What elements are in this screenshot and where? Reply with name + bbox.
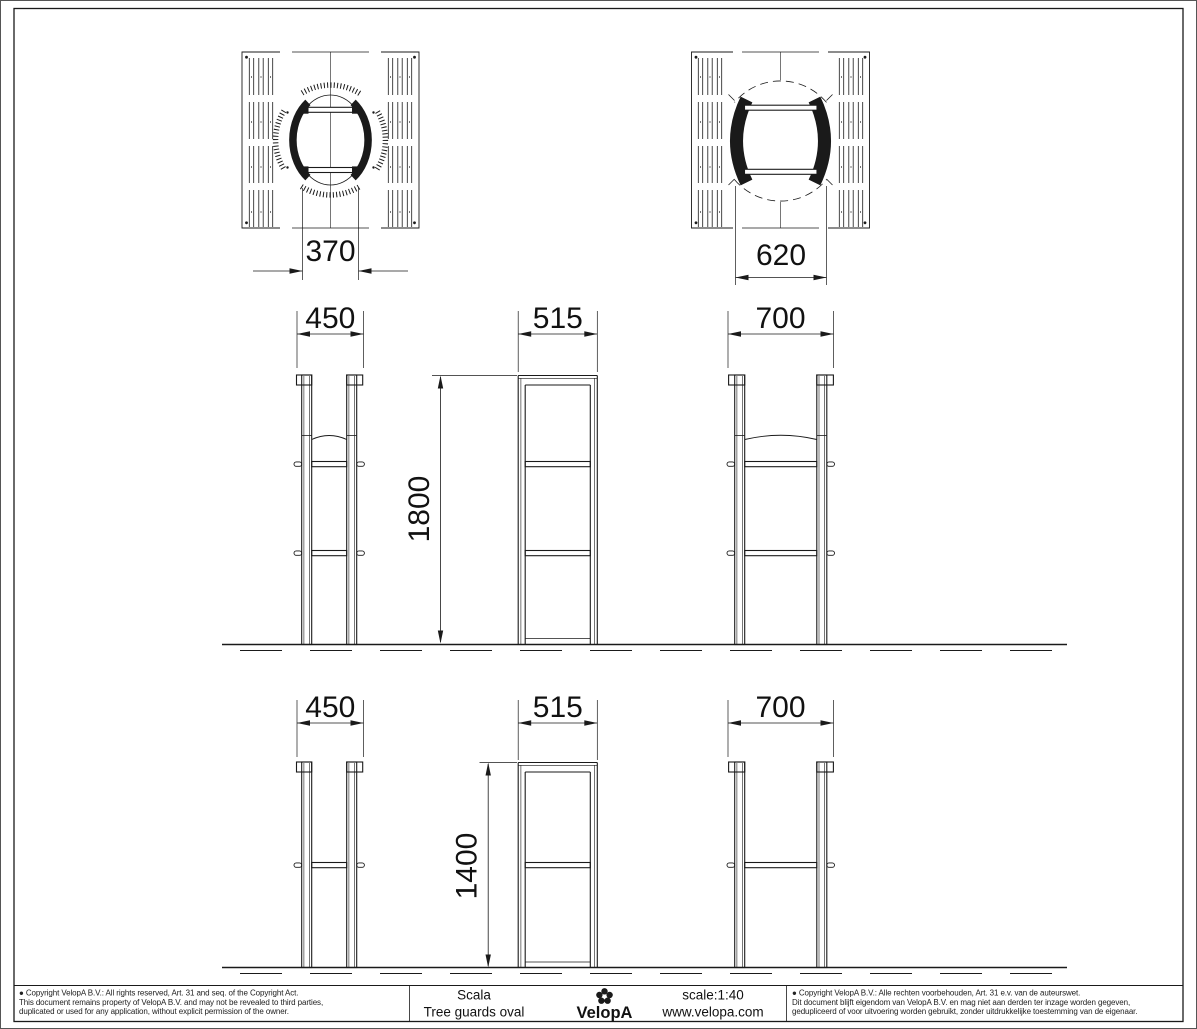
copyright-nl-line1: ● Copyright VelopA B.V.: Alle rechten vo…	[792, 989, 1080, 998]
dimension-700-upper: 700	[728, 302, 834, 368]
copyright-en-line2: This document remains property of VelopA…	[19, 998, 323, 1007]
dimension-450-lower: 450	[297, 691, 364, 757]
drawing-sheet: 370 620	[0, 0, 1197, 1029]
dim-label-450-upper: 450	[305, 302, 355, 335]
scale-label: scale:1:40	[682, 988, 744, 1003]
dimension-1400: 1400	[451, 763, 518, 968]
brand-name: VelopA	[577, 1004, 633, 1022]
side-view-515-h1800	[518, 376, 597, 645]
dim-label-450-lower: 450	[305, 691, 355, 724]
dim-label-370: 370	[305, 235, 355, 268]
front-view-450-h1800	[294, 375, 364, 645]
dim-label-700-lower: 700	[755, 691, 805, 724]
page-edge	[1, 1, 1197, 1029]
copyright-en-line1: ● Copyright VelopA B.V.: All rights rese…	[19, 989, 298, 998]
dimension-515-upper: 515	[518, 302, 597, 372]
dimension-515-lower: 515	[518, 691, 597, 760]
front-view-700-h1800	[727, 375, 835, 645]
dim-label-515-lower: 515	[533, 691, 583, 724]
dim-label-1800: 1800	[403, 476, 436, 543]
website-link: www.velopa.com	[661, 1005, 763, 1020]
dim-label-515-upper: 515	[533, 302, 583, 335]
flower-icon	[596, 988, 613, 1004]
sheet-border	[14, 9, 1183, 1022]
ground-line-lower	[222, 968, 1067, 974]
copyright-nl-line3: gedupliceerd of voor uitvoering worden g…	[792, 1007, 1137, 1016]
product-line-title: Scala	[457, 988, 491, 1003]
dim-label-620: 620	[756, 239, 806, 272]
dimension-1800: 1800	[403, 376, 517, 644]
dim-label-1400: 1400	[451, 833, 484, 900]
copyright-en-line3: duplicated or used for any application, …	[19, 1007, 289, 1016]
dim-label-700-upper: 700	[755, 302, 805, 335]
top-view-oval-620	[692, 52, 870, 228]
copyright-nl-line2: Dit document blijft eigendom van VelopA …	[792, 998, 1130, 1007]
front-view-700-h1400	[727, 762, 835, 968]
velopa-logo: VelopA	[577, 988, 633, 1022]
ground-line-upper	[222, 645, 1067, 651]
product-name-title: Tree guards oval	[424, 1005, 525, 1020]
side-view-515-h1400	[518, 763, 597, 968]
title-block: ● Copyright VelopA B.V.: All rights rese…	[14, 986, 1183, 1023]
top-view-oval-370	[242, 52, 419, 228]
dimension-700-lower: 700	[728, 691, 834, 757]
copyright-notice-nl: ● Copyright VelopA B.V.: Alle rechten vo…	[792, 989, 1137, 1017]
dimension-450-upper: 450	[297, 302, 364, 368]
front-view-450-h1400	[294, 762, 364, 968]
copyright-notice-en: ● Copyright VelopA B.V.: All rights rese…	[19, 989, 323, 1017]
